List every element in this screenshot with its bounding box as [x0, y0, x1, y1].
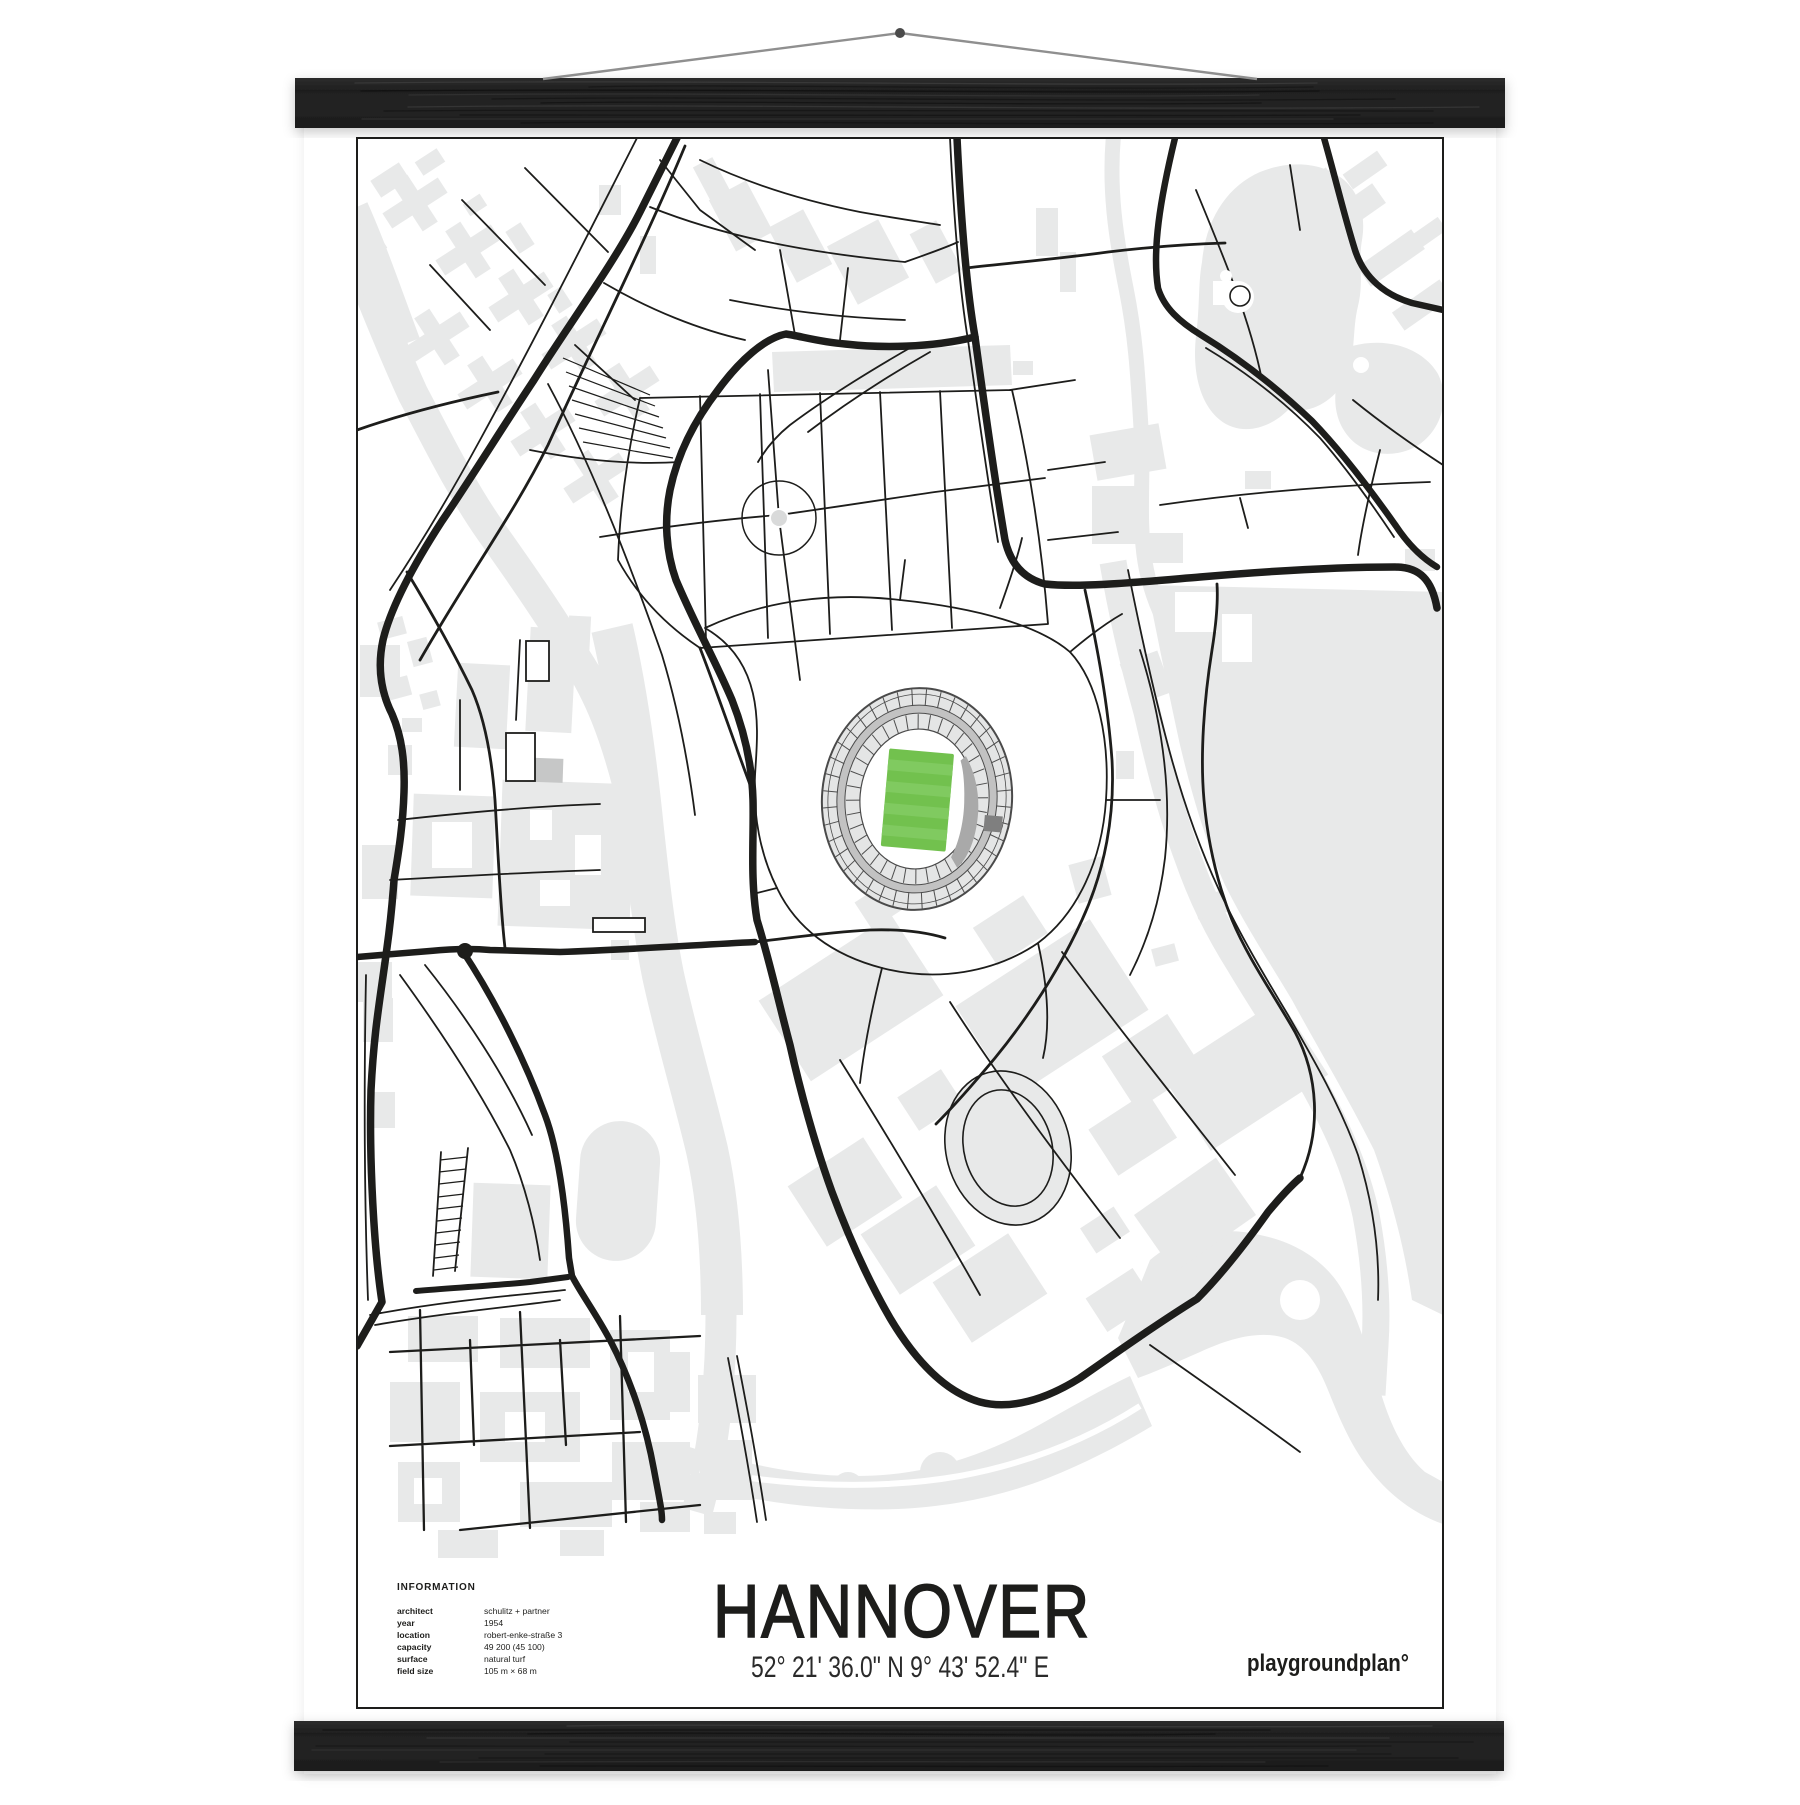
svg-text:year: year: [397, 1618, 415, 1628]
svg-text:INFORMATION: INFORMATION: [397, 1582, 476, 1593]
svg-text:architect: architect: [397, 1606, 433, 1616]
svg-text:105 m × 68 m: 105 m × 68 m: [484, 1666, 537, 1676]
svg-text:49 200 (45 100): 49 200 (45 100): [484, 1642, 545, 1652]
svg-text:52° 21' 36.0" N 9° 43' 52.4": 52° 21' 36.0" N 9° 43' 52.4" E: [751, 1651, 1049, 1684]
svg-text:surface: surface: [397, 1654, 428, 1664]
svg-text:capacity: capacity: [397, 1642, 432, 1652]
svg-text:1954: 1954: [484, 1618, 503, 1628]
svg-text:location: location: [397, 1630, 430, 1640]
svg-text:robert-enke-straße 3: robert-enke-straße 3: [484, 1630, 563, 1640]
svg-text:field size: field size: [397, 1666, 434, 1676]
svg-text:HANNOVER: HANNOVER: [713, 1569, 1091, 1653]
svg-text:schulitz + partner: schulitz + partner: [484, 1606, 550, 1616]
svg-text:playgroundplan°: playgroundplan°: [1247, 1650, 1409, 1677]
svg-text:natural turf: natural turf: [484, 1654, 526, 1664]
